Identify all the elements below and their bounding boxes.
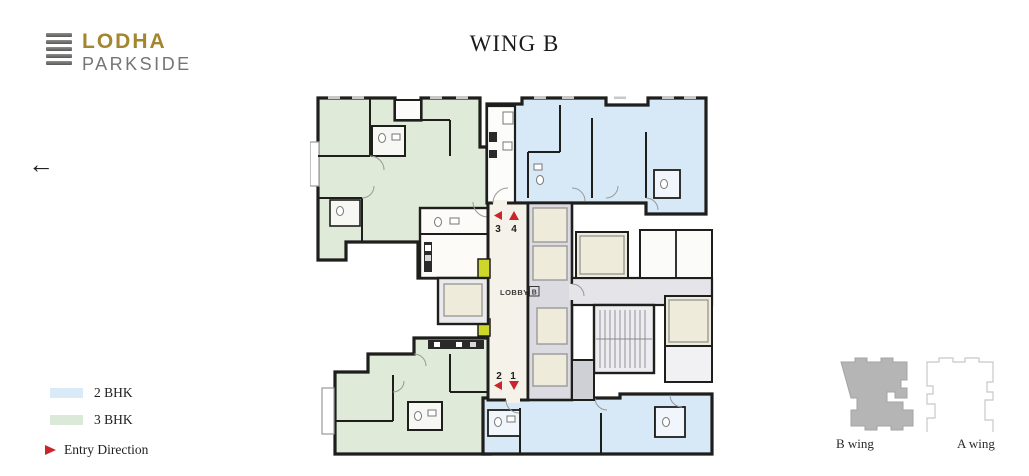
unit-3bhk-bottom (322, 338, 490, 454)
swatch-2bhk (50, 388, 83, 398)
lobby-wing-tag: B (532, 289, 537, 296)
service-core (569, 230, 712, 400)
swatch-3bhk (50, 415, 83, 425)
logo-project-name: PARKSIDE (82, 55, 192, 73)
unit-3bhk-top (310, 97, 488, 279)
legend-label-3bhk: 3 BHK (94, 412, 133, 428)
wing-keyplan: B wing A wing (833, 352, 1013, 460)
entry-num-2: 2 (496, 371, 502, 382)
legend: 2 BHK 3 BHK Entry Direction (50, 385, 148, 458)
legend-item-3bhk: 3 BHK (50, 412, 148, 428)
floor-plan: LOBBY B 3 4 2 1 (310, 92, 714, 460)
entry-num-4: 4 (511, 224, 517, 235)
keyplan-wing-b[interactable] (841, 358, 913, 430)
keyplan-label-b-wing[interactable]: B wing (836, 436, 874, 452)
legend-label-entry: Entry Direction (64, 442, 148, 458)
staircase (594, 305, 654, 373)
service-lift-room (438, 278, 488, 324)
unit-2bhk-top (487, 97, 706, 215)
legend-label-2bhk: 2 BHK (94, 385, 133, 401)
lobby-area (488, 188, 528, 413)
keyplan-label-a-wing[interactable]: A wing (957, 436, 995, 452)
back-arrow-icon[interactable]: ← (28, 151, 54, 177)
entry-num-3: 3 (495, 224, 501, 235)
entry-direction-icon (45, 445, 56, 455)
entry-num-1: 1 (510, 371, 516, 382)
legend-item-2bhk: 2 BHK (50, 385, 148, 401)
page: LODHA PARKSIDE WING B ← (0, 0, 1029, 476)
lobby-text: LOBBY (500, 288, 529, 297)
keyplan-wing-a[interactable] (927, 358, 993, 432)
legend-entry-direction: Entry Direction (45, 442, 148, 458)
page-title: WING B (0, 31, 1029, 57)
elevator-bank (528, 203, 572, 400)
